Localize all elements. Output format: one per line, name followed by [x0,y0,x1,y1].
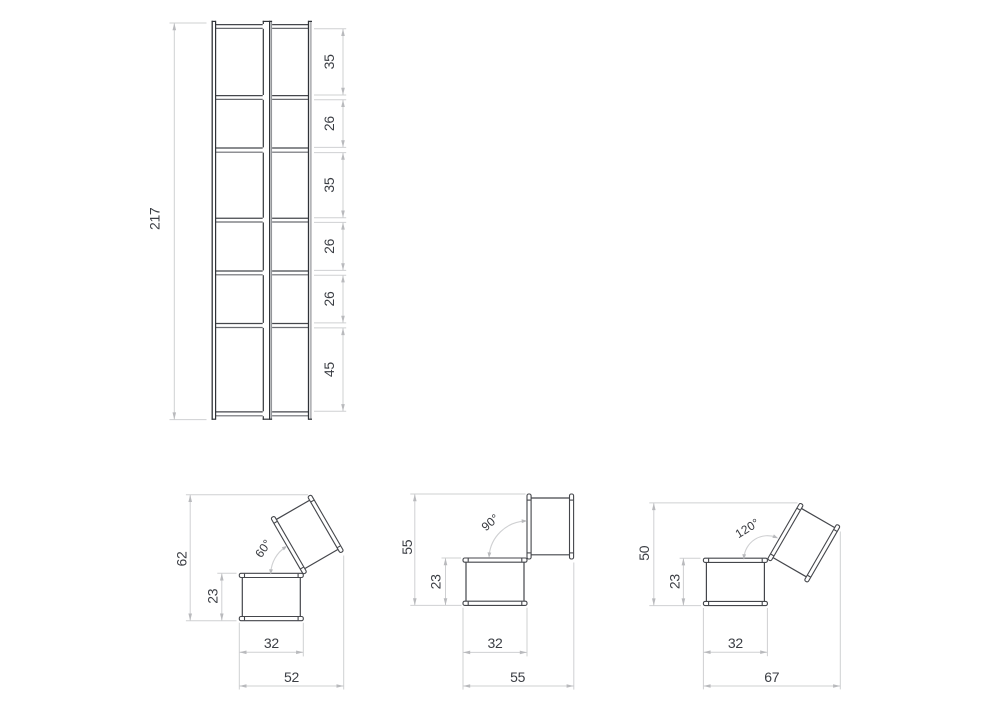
svg-text:32: 32 [488,635,503,651]
svg-text:23: 23 [204,588,220,603]
svg-text:23: 23 [666,574,682,589]
svg-text:67: 67 [764,669,779,685]
svg-text:26: 26 [321,116,337,131]
svg-text:62: 62 [174,551,190,566]
svg-text:35: 35 [321,54,337,69]
svg-text:217: 217 [146,207,162,230]
svg-text:26: 26 [321,291,337,306]
svg-text:50: 50 [636,545,652,560]
svg-text:26: 26 [321,238,337,253]
svg-text:55: 55 [510,669,525,685]
svg-text:23: 23 [427,574,443,589]
svg-text:35: 35 [321,177,337,192]
svg-text:32: 32 [264,635,279,651]
svg-text:52: 52 [284,669,299,685]
svg-text:45: 45 [321,362,337,377]
svg-text:32: 32 [728,635,743,651]
svg-text:55: 55 [399,539,415,554]
